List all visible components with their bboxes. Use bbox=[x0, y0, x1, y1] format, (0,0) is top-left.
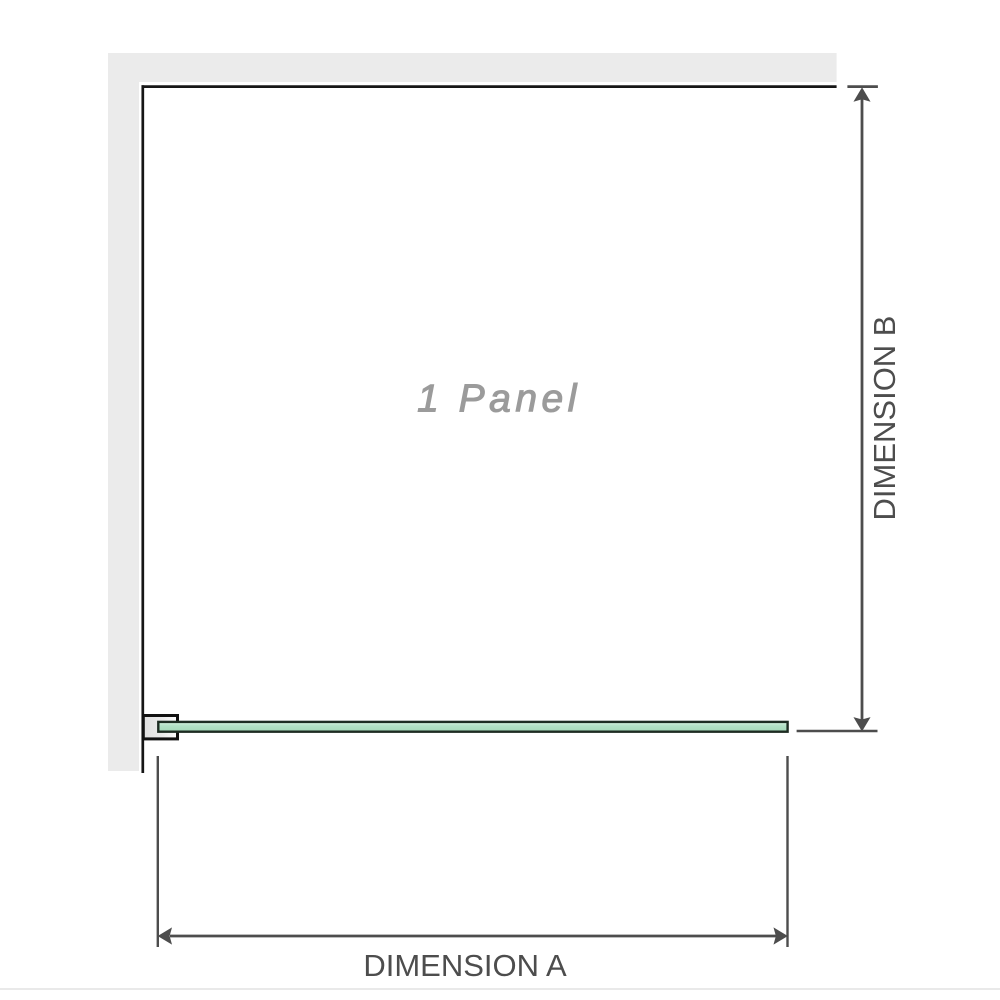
svg-text:DIMENSION B: DIMENSION B bbox=[867, 316, 902, 521]
svg-text:1 Panel: 1 Panel bbox=[417, 378, 581, 421]
svg-text:DIMENSION A: DIMENSION A bbox=[363, 948, 567, 983]
